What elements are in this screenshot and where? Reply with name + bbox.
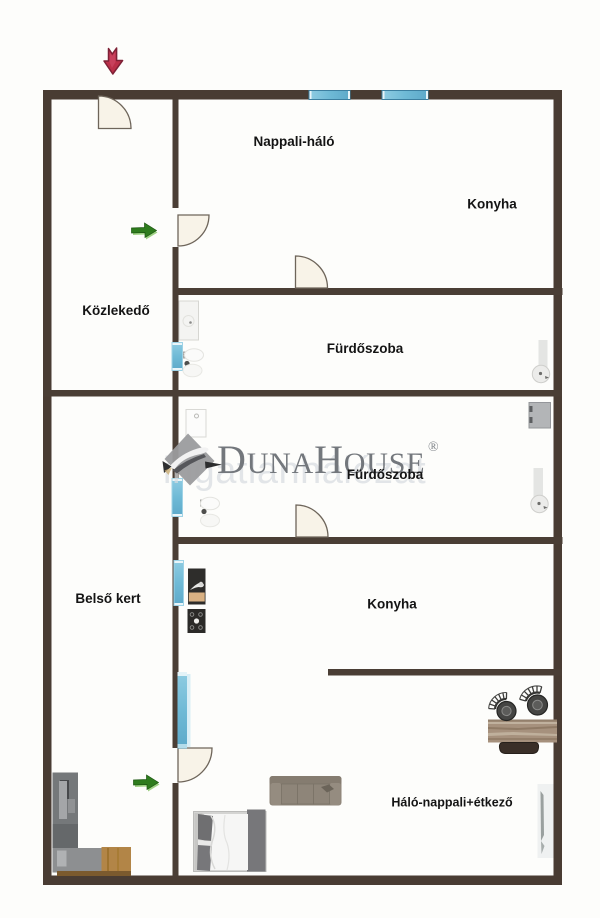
- svg-text:Háló-nappali+étkező: Háló-nappali+étkező: [391, 796, 513, 810]
- svg-text:®: ®: [428, 440, 439, 455]
- svg-text:Belső kert: Belső kert: [75, 591, 141, 606]
- svg-text:Konyha: Konyha: [367, 597, 417, 612]
- svg-text:Fürdőszoba: Fürdőszoba: [327, 341, 404, 356]
- svg-text:Konyha: Konyha: [467, 197, 517, 212]
- svg-text:Fürdőszoba: Fürdőszoba: [347, 467, 424, 482]
- svg-text:Nappali-háló: Nappali-háló: [253, 134, 334, 149]
- svg-text:Közlekedő: Közlekedő: [82, 303, 150, 318]
